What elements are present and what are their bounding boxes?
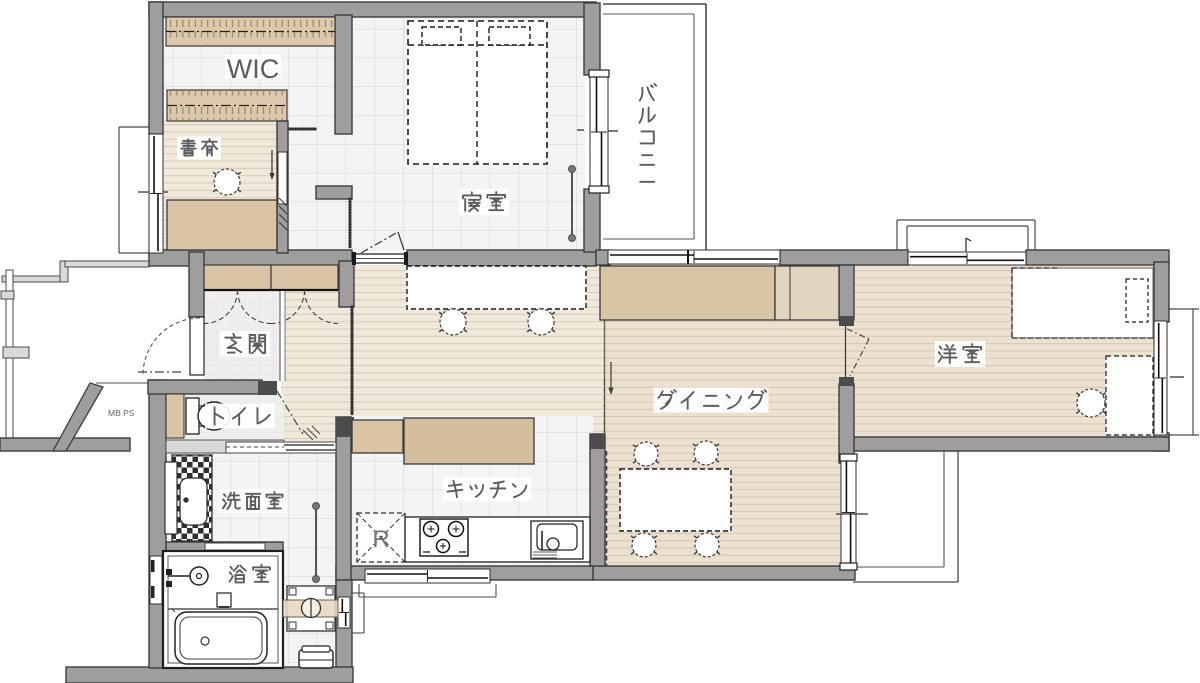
svg-text:R: R: [372, 526, 389, 553]
svg-text:MB PS: MB PS: [108, 408, 135, 418]
svg-text:WIC: WIC: [227, 54, 279, 84]
